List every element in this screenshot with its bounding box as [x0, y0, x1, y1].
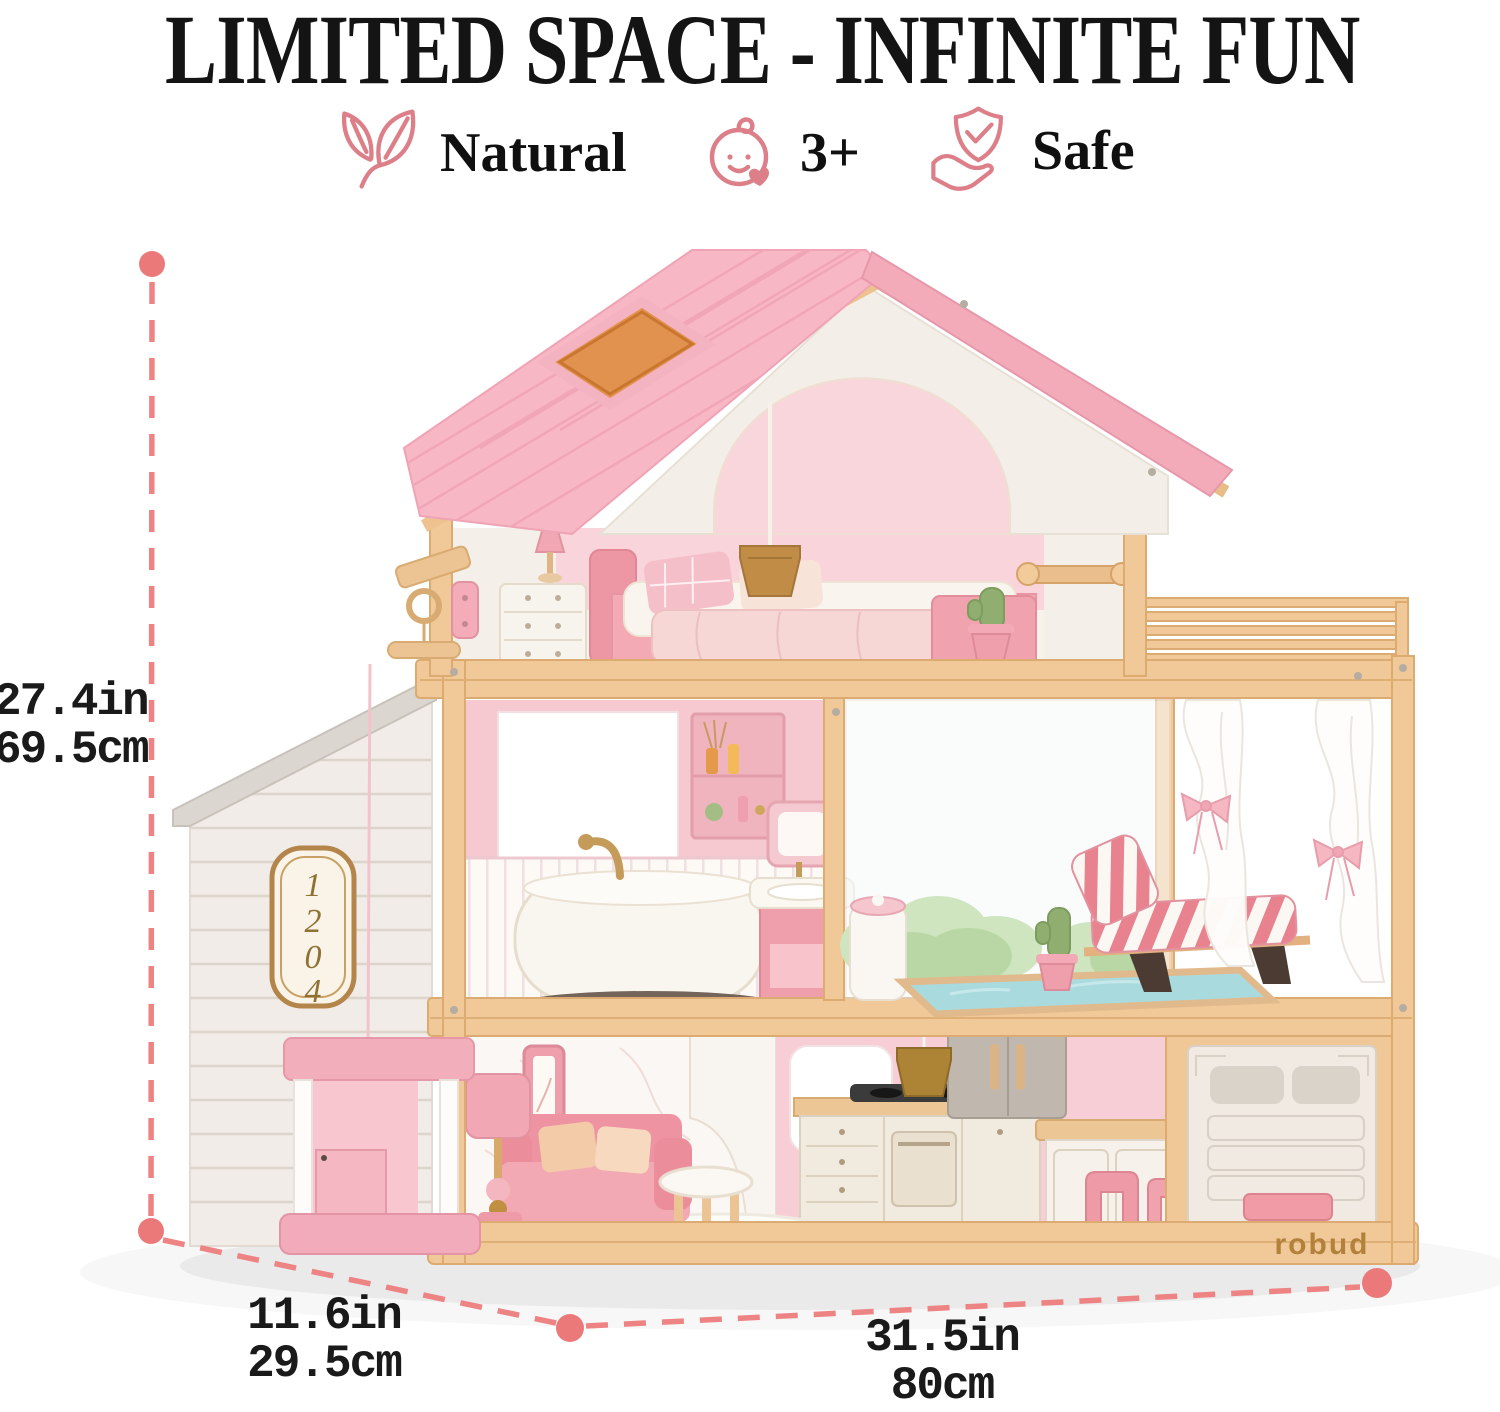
house-number-plaque: 1 2 0 4: [272, 848, 354, 1010]
house-number-digit: 0: [305, 939, 322, 976]
garage-door-handle: [1244, 1194, 1332, 1220]
dimension-dot-middle: [556, 1314, 584, 1342]
dollhouse-illustration: 1 2 0 4: [0, 0, 1500, 1410]
ground-floor: robud: [455, 1004, 1398, 1258]
towel-rod: [1017, 563, 1133, 585]
height-dimension-line: [151, 282, 152, 1218]
dimension-dot-corner: [138, 1218, 164, 1244]
house-number-digit: 1: [305, 867, 322, 904]
storage-cylinder: [850, 894, 906, 1000]
dimension-dot-right: [1362, 1268, 1392, 1298]
house-number-digit: 4: [305, 973, 322, 1010]
mid-post: [824, 698, 844, 1000]
brand-logo: robud: [1275, 1228, 1370, 1261]
house-number-digit: 2: [305, 903, 322, 940]
right-post: [1392, 656, 1414, 1264]
pergola: [1146, 598, 1408, 664]
balcony: [840, 700, 1384, 1014]
dimension-dot-top: [139, 251, 165, 277]
bathroom: [455, 700, 854, 1017]
dresser: [500, 584, 586, 668]
garage: [1166, 1030, 1398, 1246]
